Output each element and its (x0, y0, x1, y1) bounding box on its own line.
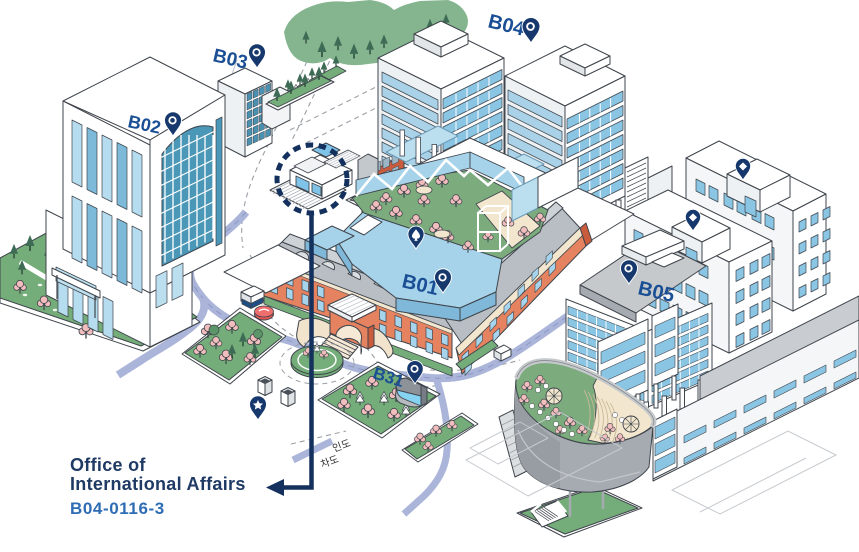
svg-text:B04-0116-3: B04-0116-3 (70, 499, 165, 518)
svg-text:International Affairs: International Affairs (70, 474, 246, 494)
svg-text:Office of: Office of (70, 455, 146, 475)
